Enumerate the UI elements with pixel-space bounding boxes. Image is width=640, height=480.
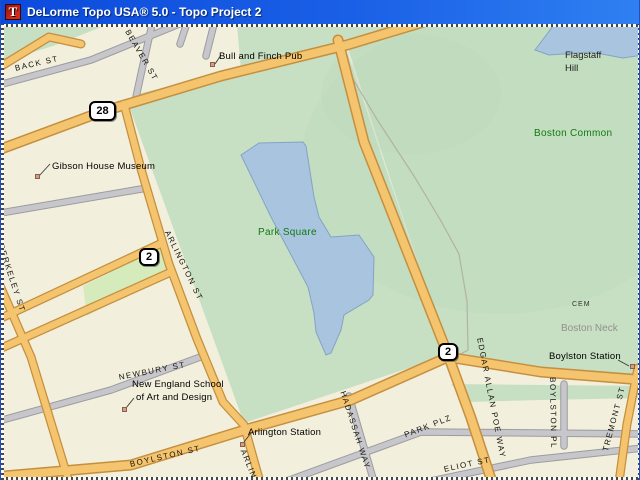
map-surface[interactable]: BACK STBEAVER STARLINGTON STBERKELEY STN… bbox=[1, 24, 640, 480]
poi-marker-boylston-station[interactable] bbox=[630, 364, 635, 369]
map-graphics bbox=[1, 24, 640, 480]
poi-marker-bull-and-finch-pub[interactable] bbox=[210, 62, 215, 67]
window-title: DeLorme Topo USA® 5.0 - Topo Project 2 bbox=[27, 5, 261, 19]
app-logo-icon: T bbox=[5, 4, 21, 20]
route-shield-28: 28 bbox=[89, 101, 116, 121]
route-shield-2-east: 2 bbox=[438, 343, 458, 361]
title-bar: T DeLorme Topo USA® 5.0 - Topo Project 2 bbox=[1, 0, 640, 24]
app-window: T DeLorme Topo USA® 5.0 - Topo Project 2 bbox=[0, 0, 640, 480]
poi-marker-gibson-house-museum[interactable] bbox=[35, 174, 40, 179]
route-shield-2-west: 2 bbox=[139, 248, 159, 266]
poi-marker-arlington-station[interactable] bbox=[240, 442, 245, 447]
poi-marker-ne-school[interactable] bbox=[122, 407, 127, 412]
